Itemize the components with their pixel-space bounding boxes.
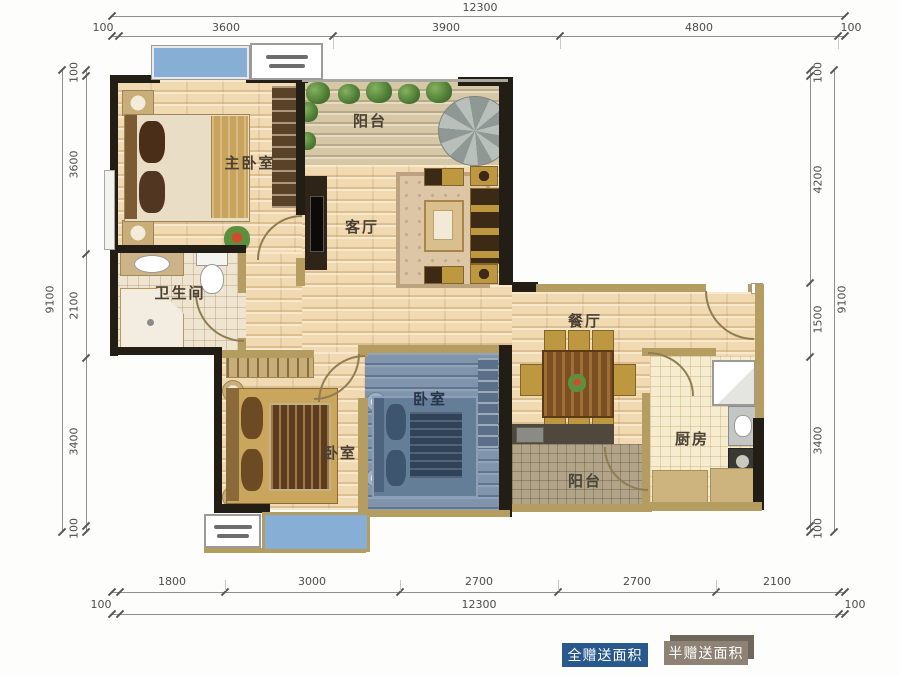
room-label-bottom-balcony: 阳台 [553, 470, 617, 491]
plant-icon [366, 80, 392, 103]
ac-unit-icon [266, 55, 308, 59]
bed-headboard [374, 398, 384, 492]
dim-left-seg: 100 [68, 499, 81, 559]
dim-left-seg: 2100 [68, 276, 81, 336]
dim-left-overall: 9100 [44, 270, 57, 330]
dim-top-seg: 3600 [196, 21, 256, 34]
dim-tick [841, 12, 849, 20]
balcony-counter [512, 424, 614, 444]
dining-chair-icon [592, 330, 614, 352]
wardrobe-icon [478, 358, 498, 448]
dim-bottom-seg: 2700 [607, 575, 667, 588]
dim-extension [560, 37, 561, 49]
tv-cabinet-icon [305, 176, 327, 270]
dim-right-seg: 1500 [812, 290, 825, 350]
wall [110, 347, 222, 355]
pillow [139, 171, 165, 213]
legend-full-gift-area[interactable]: 全赠送面积 [562, 643, 648, 667]
ac-unit-icon [214, 525, 252, 529]
fridge-icon [712, 360, 756, 406]
bed-headboard [125, 115, 137, 219]
wall [214, 352, 222, 510]
dim-right-seg: 100 [812, 499, 825, 559]
wardrobe-icon [272, 86, 298, 208]
balcony-railing [302, 79, 508, 82]
armchair-icon [424, 168, 464, 186]
armchair-icon [424, 266, 464, 284]
dim-line [112, 36, 846, 37]
wall [365, 345, 499, 353]
nightstand-lamp-icon [122, 90, 154, 116]
side-table-icon [470, 264, 498, 284]
dining-chair-icon [568, 330, 590, 352]
tv-icon [310, 196, 324, 252]
wall [753, 418, 764, 510]
dim-tick [58, 528, 66, 536]
bay-window [152, 46, 249, 79]
dim-left-seg: 3600 [68, 135, 81, 195]
dim-bottom-pad: 100 [86, 598, 116, 611]
dim-right-seg: 3400 [812, 411, 825, 471]
dim-bottom-seg: 3000 [282, 575, 342, 588]
dim-tick [830, 528, 838, 536]
dim-top-seg: 3900 [416, 21, 476, 34]
side-table-icon [470, 166, 498, 186]
wall [536, 284, 706, 292]
wall [499, 345, 512, 517]
dim-bottom-seg: 1800 [142, 575, 202, 588]
room-label-bathroom: 卫生间 [142, 282, 218, 303]
wall [755, 284, 764, 418]
plant-icon [306, 82, 330, 104]
dim-top-overall: 12300 [440, 1, 520, 14]
wall [296, 258, 305, 286]
shower-drain [147, 319, 154, 326]
wall [650, 502, 762, 511]
dim-bottom-pad: 100 [840, 598, 870, 611]
dining-chair-icon [544, 330, 566, 352]
sink-icon [134, 255, 170, 273]
wall [512, 504, 652, 512]
dim-right-overall: 9100 [836, 270, 849, 330]
dim-left-seg: 3400 [68, 412, 81, 472]
table-top-decor [433, 210, 453, 240]
wall [499, 77, 513, 285]
dim-line [112, 16, 846, 17]
kitchen-counter [710, 468, 758, 504]
washing-machine-icon [516, 427, 544, 443]
wall [512, 282, 538, 292]
dim-extension [333, 37, 334, 49]
ac-platform [250, 43, 323, 80]
wall [110, 245, 246, 253]
ac-unit-icon [269, 64, 305, 68]
pillow [139, 121, 165, 163]
dim-extension [558, 580, 559, 591]
floor-plan-screenshot: 12300 100 3600 3900 4800 100 1800 3000 2… [0, 0, 900, 675]
room-label-gifted-bedroom: 卧室 [398, 388, 462, 409]
coffee-table-icon [424, 200, 464, 252]
dim-line [62, 70, 63, 532]
blanket [410, 412, 462, 478]
dim-extension [838, 37, 839, 49]
legend-half-gift-area[interactable]: 半赠送面积 [664, 641, 748, 665]
dim-left-seg: 100 [68, 43, 81, 103]
room-label-dining-room: 餐厅 [553, 310, 617, 331]
dim-top-seg: 4800 [669, 21, 729, 34]
dim-extension [225, 580, 226, 591]
hallway-floor [246, 252, 302, 352]
dim-bottom-overall: 12300 [439, 598, 519, 611]
bay-window [262, 512, 370, 552]
side-window [104, 170, 115, 250]
pillow [241, 397, 263, 439]
room-label-kitchen: 厨房 [660, 428, 724, 449]
sink-basin [734, 415, 752, 437]
wardrobe-icon [226, 356, 314, 378]
room-label-master-bedroom: 主卧室 [212, 152, 288, 173]
dim-bottom-seg: 2700 [449, 575, 509, 588]
room-label-top-balcony: 阳台 [340, 110, 400, 131]
kitchen-counter [652, 470, 708, 504]
dining-table-icon [542, 350, 614, 418]
dim-extension [716, 580, 717, 591]
nightstand-lamp-icon [122, 220, 154, 246]
bed-icon [372, 396, 478, 498]
plant-icon [338, 84, 360, 104]
pillow [386, 404, 406, 440]
bed-headboard [227, 389, 239, 501]
dim-bottom-seg: 2100 [747, 575, 807, 588]
dim-right-seg: 4200 [812, 150, 825, 210]
wall [238, 253, 246, 293]
window-sill [365, 510, 510, 517]
dim-line [86, 70, 87, 532]
dim-extension [400, 580, 401, 591]
dining-chair-icon [520, 364, 544, 396]
vanity-counter [120, 252, 184, 276]
plant-icon [398, 84, 420, 104]
table-flower-icon [568, 374, 586, 392]
wall [296, 75, 305, 215]
pillow [386, 450, 406, 486]
wall [222, 350, 314, 358]
room-label-living-room: 客厅 [330, 216, 394, 237]
ac-platform [204, 514, 261, 548]
sofa-icon [470, 188, 502, 264]
room-label-left-bedroom: 卧室 [308, 442, 372, 463]
pillow [241, 449, 263, 491]
burner [736, 455, 749, 468]
dining-chair-icon [612, 364, 636, 396]
dim-line [112, 614, 846, 615]
ac-unit-icon [217, 534, 249, 538]
plant-icon [426, 80, 452, 103]
dim-right-seg: 100 [812, 43, 825, 103]
